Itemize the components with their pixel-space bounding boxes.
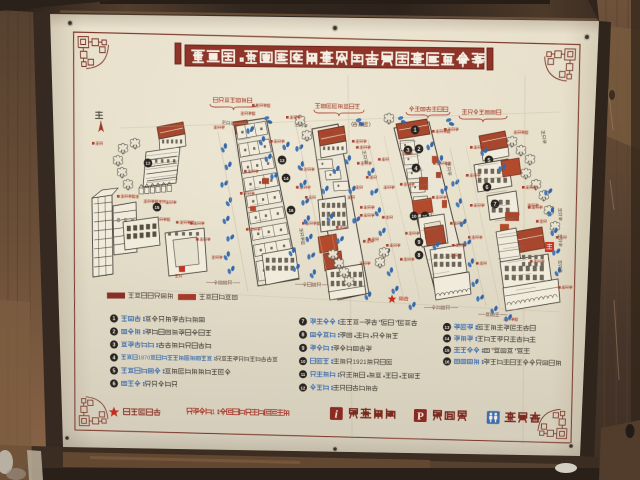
- svg-text:13: 13: [280, 158, 285, 164]
- svg-text:15: 15: [154, 205, 159, 211]
- svg-text:10: 10: [301, 359, 306, 365]
- svg-text:7: 7: [301, 320, 304, 326]
- svg-text:11: 11: [301, 372, 306, 378]
- svg-text:0: 0: [147, 356, 150, 362]
- svg-text:14: 14: [284, 176, 289, 182]
- svg-text:1: 1: [211, 408, 215, 416]
- svg-text:2: 2: [112, 330, 115, 336]
- svg-text:13: 13: [444, 325, 449, 331]
- svg-text:12: 12: [301, 386, 306, 392]
- svg-text:3: 3: [406, 148, 409, 154]
- svg-text:3: 3: [112, 343, 115, 349]
- svg-text:12: 12: [145, 161, 150, 167]
- svg-text:15: 15: [444, 348, 449, 354]
- svg-text:2: 2: [417, 147, 420, 153]
- svg-text:P: P: [417, 410, 424, 423]
- svg-text:6: 6: [113, 382, 116, 388]
- svg-text:9: 9: [302, 346, 305, 352]
- svg-text:16: 16: [289, 208, 294, 214]
- svg-text:6: 6: [485, 185, 488, 191]
- svg-text:10: 10: [411, 214, 416, 220]
- svg-text:14: 14: [444, 336, 449, 342]
- svg-text:1: 1: [363, 359, 367, 366]
- svg-text:9: 9: [417, 240, 420, 246]
- svg-text:16: 16: [444, 360, 449, 366]
